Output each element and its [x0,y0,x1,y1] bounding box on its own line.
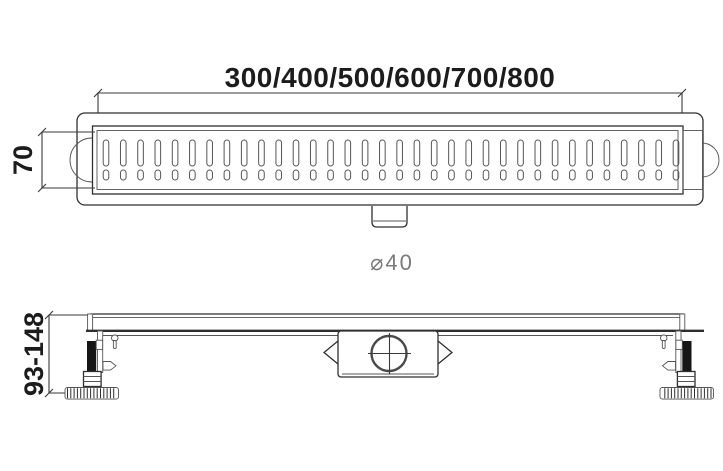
foot-pin-stem [113,341,116,349]
foot-nut [84,372,102,387]
foot-base-knurling [68,388,114,398]
drain-body [70,113,719,227]
flange-left-end [88,314,93,331]
flange-right-end [680,314,685,331]
trap-left-wing [324,341,338,364]
height-dimension-label: 93-148 [19,312,49,396]
drain-outer-frame [77,113,703,205]
top-view: 300/400/500/600/700/800 [8,62,719,227]
width-dimension-label: 70 [8,145,38,175]
outlet-stub-outline [372,206,407,227]
technical-drawing-canvas: 300/400/500/600/700/800 [0,0,723,471]
right-end-arc [702,143,719,177]
foot-threaded-rod [87,341,96,372]
foot-collar [96,340,102,349]
adjustable-foot-left [65,331,119,399]
foot-bracket [98,331,103,373]
outlet-diameter-label: ⌀40 [370,250,414,275]
trap-right-wing [438,341,452,364]
foot-side-clip [103,362,116,371]
length-dimension-label: 300/400/500/600/700/800 [225,62,556,93]
height-dimension: 93-148 [19,311,90,397]
trap-box [324,331,452,377]
outlet-stub [372,206,407,227]
side-view: 93-148 [19,311,714,399]
adjustable-foot-right [660,331,714,399]
